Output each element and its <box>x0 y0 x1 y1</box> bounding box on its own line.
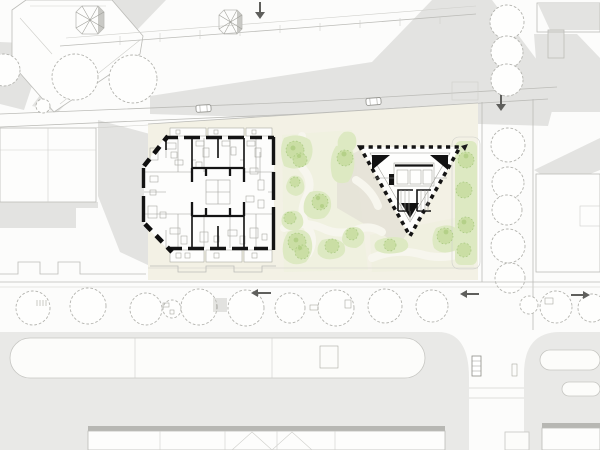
site-plan-canvas <box>0 0 600 450</box>
street-trees-right <box>490 5 525 293</box>
right-edge-building <box>536 174 600 272</box>
bottom-left-building <box>88 431 445 450</box>
site-plan <box>0 0 600 450</box>
roof-edge-band <box>88 426 445 431</box>
tram-platform <box>10 338 425 378</box>
balconies-top <box>170 128 272 136</box>
bottom-right-building <box>542 428 600 450</box>
balconies-bottom <box>170 250 272 262</box>
